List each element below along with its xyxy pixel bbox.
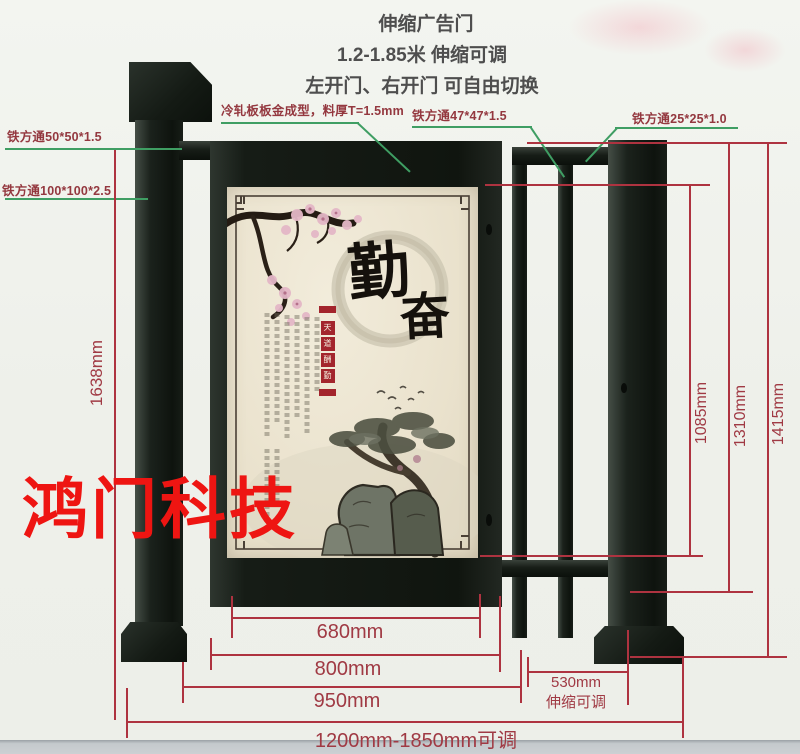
dim-line-1200 xyxy=(127,721,683,723)
photo-artifact xyxy=(690,20,800,80)
dim-tick-1085-bottom xyxy=(480,555,703,557)
seal-banner-bottom-bracket xyxy=(319,389,336,396)
dim-line-950 xyxy=(183,686,521,688)
dim-label-1415: 1415mm xyxy=(770,354,788,474)
calligraphy-fen: 奋 xyxy=(396,288,455,347)
dim-line-800 xyxy=(211,654,500,656)
seal-char-4: 勤 xyxy=(321,369,335,383)
seal-char-2: 道 xyxy=(321,337,335,351)
leader-tube47 xyxy=(412,126,532,128)
dim-tick-1200-left xyxy=(126,688,128,738)
product-diagram-scene: 伸缩广告门 1.2-1.85米 伸缩可调 左开门、右开门 可自由切换 xyxy=(0,0,800,754)
dim-label-530: 530mm xyxy=(536,674,616,691)
dim-line-530 xyxy=(528,671,629,673)
top-connector-rail xyxy=(179,141,214,160)
dim-label-1310: 1310mm xyxy=(732,356,750,476)
callout-cold-rolled: 冷轧板板金成型，料厚T=1.5mm xyxy=(221,100,404,119)
seal-banner: 天 道 酬 勤 xyxy=(318,306,337,396)
dim-tick-680-right xyxy=(479,594,481,638)
dim-line-1415 xyxy=(767,142,769,657)
extension-top-rail xyxy=(512,147,608,165)
dim-tick-top-right xyxy=(527,142,787,144)
dim-tick-1200-right xyxy=(682,656,684,738)
watermark-text: 鸿门科技 xyxy=(22,456,298,552)
dim-line-680 xyxy=(232,617,480,619)
door-lock-keyhole xyxy=(486,224,492,235)
seal-banner-top-bracket xyxy=(319,306,336,313)
seal-char-1: 天 xyxy=(321,321,335,335)
dim-tick-530-right xyxy=(627,630,629,705)
dim-label-800: 800mm xyxy=(268,658,428,681)
dim-label-950: 950mm xyxy=(267,690,427,713)
dim-line-1085 xyxy=(689,184,691,556)
dim-line-1638 xyxy=(114,150,116,720)
title-line-1: 伸缩广告门 xyxy=(296,9,556,36)
callout-tube50: 铁方通50*50*1.5 xyxy=(7,126,102,145)
post-screw xyxy=(621,383,627,393)
left-post-base xyxy=(121,622,187,662)
dim-tick-800-right xyxy=(499,596,501,672)
dim-tick-1310-bottom xyxy=(630,591,753,593)
dim-tick-950-right xyxy=(520,650,522,703)
dim-tick-1085-top xyxy=(485,184,710,186)
title-line-3: 左开门、右开门 可自由切换 xyxy=(262,71,582,98)
door-lower-latch xyxy=(486,514,492,526)
dim-label-1200-range: 1200mm-1850mm可调 xyxy=(296,724,536,753)
leader-tube50 xyxy=(5,148,182,150)
dim-label-680: 680mm xyxy=(270,621,430,644)
dim-label-1638: 1638mm xyxy=(88,313,106,433)
leader-tube25 xyxy=(615,127,738,129)
right-post-base xyxy=(594,626,684,664)
right-post xyxy=(608,140,667,632)
leader-cold-rolled xyxy=(221,122,359,124)
callout-tube100: 铁方通100*100*2.5 xyxy=(2,180,111,199)
motor-housing xyxy=(129,62,212,122)
seal-char-3: 酬 xyxy=(321,353,335,367)
dim-tick-950-left xyxy=(182,662,184,703)
leader-tube100 xyxy=(5,198,148,200)
dim-line-1310 xyxy=(728,142,730,592)
callout-tube47: 铁方通47*47*1.5 xyxy=(412,105,507,124)
dim-label-1085: 1085mm xyxy=(693,353,711,473)
extension-lower-rail xyxy=(502,560,618,577)
dim-tick-1415-bottom xyxy=(630,656,787,658)
callout-tube25: 铁方通25*25*1.0 xyxy=(632,108,727,127)
dim-label-530-note: 伸缩可调 xyxy=(536,691,616,712)
title-line-2: 1.2-1.85米 伸缩可调 xyxy=(292,40,552,67)
